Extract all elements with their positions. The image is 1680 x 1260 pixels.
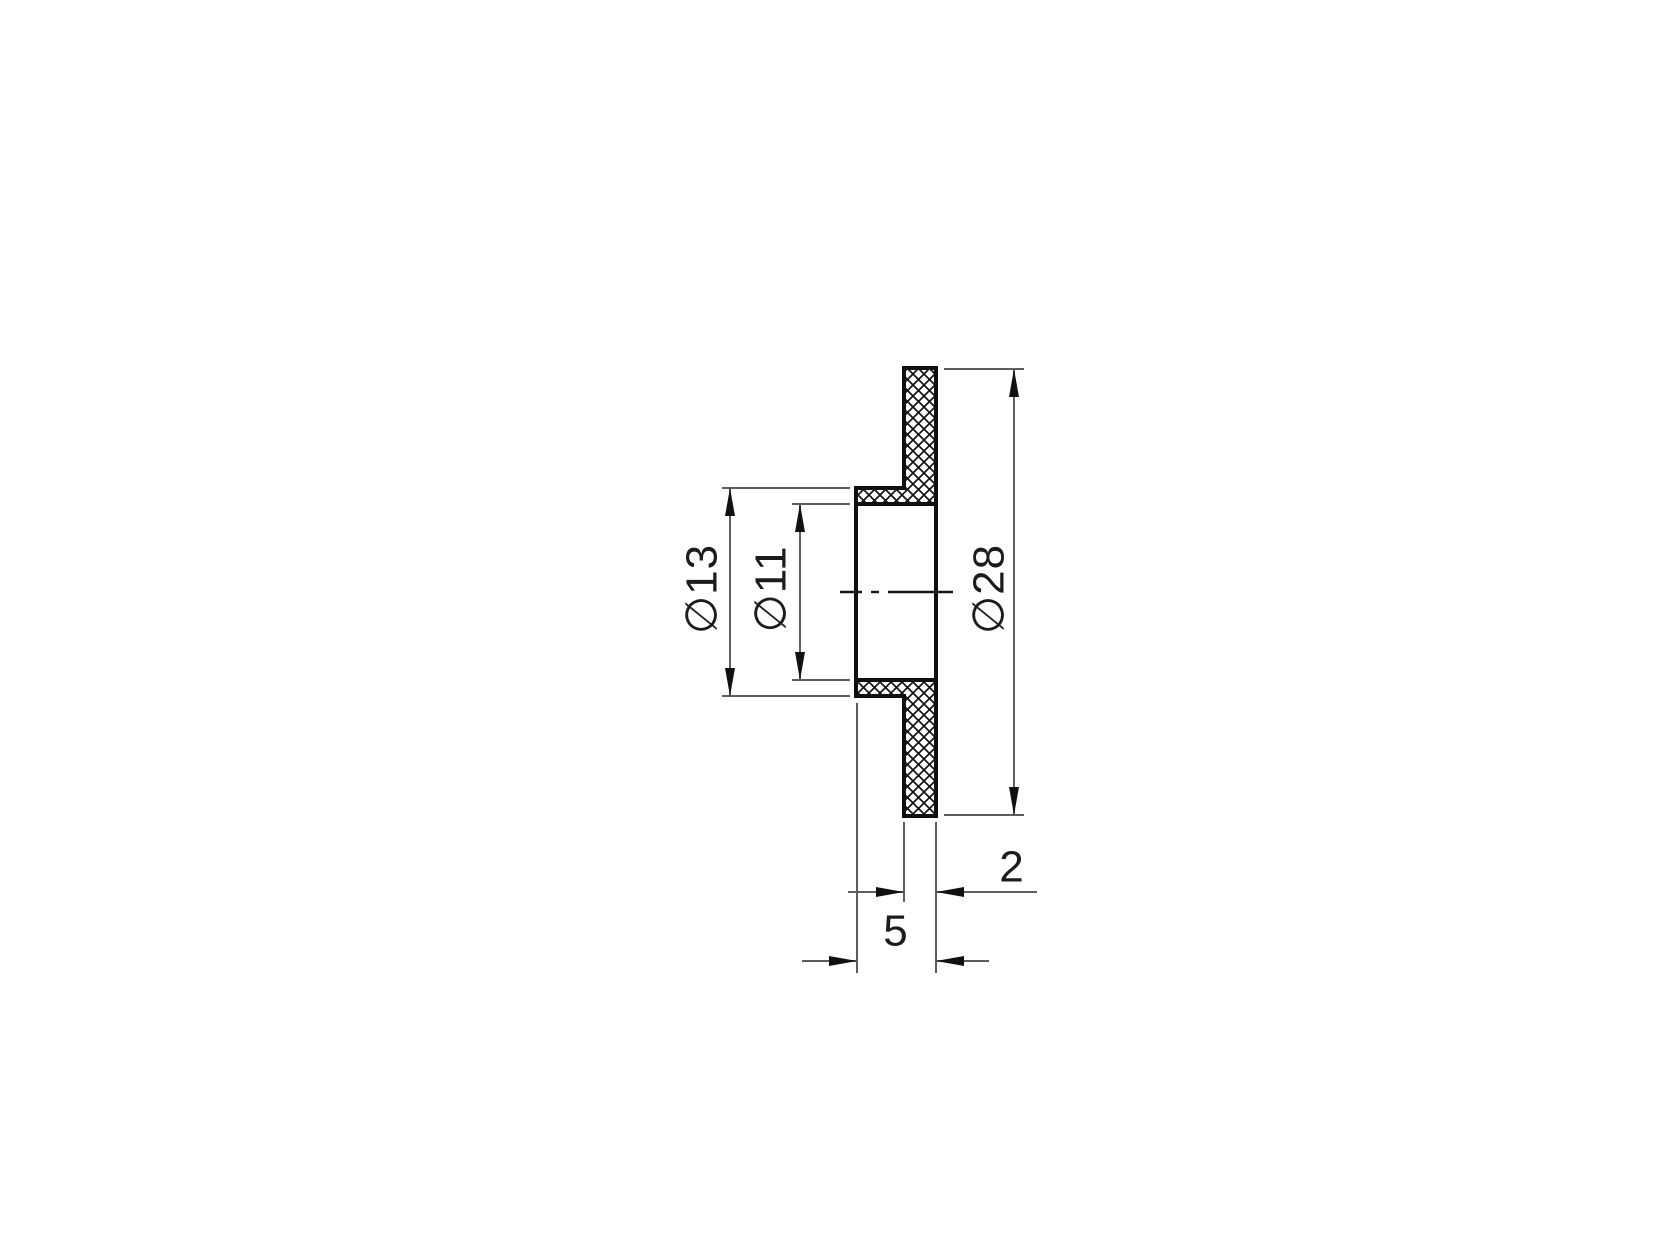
dim-label-hub-diameter: ∅13 bbox=[678, 544, 727, 634]
arrowhead-down bbox=[1009, 787, 1019, 815]
arrowhead-up bbox=[1009, 369, 1019, 397]
arrowhead-left bbox=[936, 887, 964, 897]
dim-bore-diameter: ∅11 bbox=[747, 504, 851, 680]
dim-label-flange-thickness: 2 bbox=[999, 843, 1024, 892]
dim-flange-diameter: ∅28 bbox=[944, 369, 1024, 815]
dim-flange-thickness: 2 bbox=[848, 822, 1037, 973]
dim-label-overall-length: 5 bbox=[883, 907, 908, 956]
arrowhead-down bbox=[795, 652, 805, 680]
arrowhead-down bbox=[725, 668, 735, 696]
arrowhead-right bbox=[829, 956, 857, 966]
arrowhead-up bbox=[725, 488, 735, 516]
arrowhead-left bbox=[936, 956, 964, 966]
technical-drawing: ∅13 ∅11 ∅28 2 bbox=[0, 0, 1680, 1260]
dim-label-flange-diameter: ∅28 bbox=[965, 544, 1014, 634]
dim-overall-length: 5 bbox=[802, 703, 989, 973]
dim-label-bore-diameter: ∅11 bbox=[747, 545, 796, 632]
drawing-canvas: ∅13 ∅11 ∅28 2 bbox=[0, 0, 1680, 1260]
arrowhead-right bbox=[876, 887, 904, 897]
arrowhead-up bbox=[795, 504, 805, 532]
